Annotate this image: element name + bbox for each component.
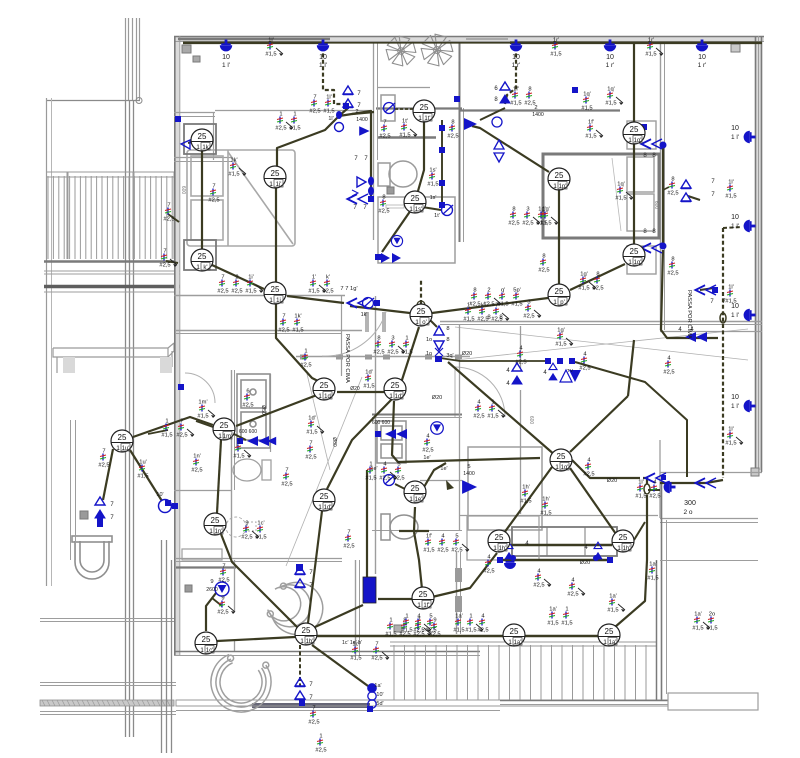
svg-text:1: 1 [491, 400, 494, 406]
svg-text:1: 1 [553, 299, 557, 306]
svg-text:#2,5: #2,5 [583, 472, 594, 478]
svg-text:25: 25 [411, 484, 420, 493]
svg-text:1a': 1a' [549, 607, 557, 613]
svg-text:1t': 1t' [402, 119, 408, 125]
svg-text:1: 1 [318, 504, 322, 511]
svg-text:#2,5: #2,5 [437, 548, 448, 554]
svg-text:#1,5: #1,5 [350, 656, 361, 662]
svg-text:1: 1 [555, 464, 559, 471]
svg-text:1l': 1l' [728, 180, 734, 186]
svg-text:8: 8 [377, 336, 380, 342]
svg-text:7: 7 [383, 120, 386, 126]
svg-text:1t': 1t' [434, 213, 440, 219]
svg-text:1g': 1g' [580, 272, 588, 278]
svg-text:1d': 1d' [395, 394, 403, 400]
svg-text:1 r': 1 r' [606, 62, 615, 69]
svg-text:#1,5: #1,5 [647, 576, 658, 582]
svg-text:25: 25 [320, 381, 329, 390]
svg-text:8: 8 [446, 326, 449, 332]
svg-text:Ø20: Ø20 [350, 386, 360, 392]
svg-text:600: 600 [180, 186, 186, 195]
svg-text:#1,5: #1,5 [550, 52, 561, 58]
svg-text:1a': 1a' [455, 614, 463, 620]
svg-text:1: 1 [409, 496, 413, 503]
svg-text:#2,5: #2,5 [667, 271, 678, 277]
svg-text:#1,5: #1,5 [197, 414, 208, 420]
svg-text:1n': 1n' [215, 529, 223, 535]
svg-text:1: 1 [405, 614, 408, 620]
svg-text:1: 1 [318, 393, 322, 400]
svg-text:#2,5: #2,5 [567, 592, 578, 598]
svg-text:300: 300 [684, 500, 696, 507]
svg-text:1k': 1k' [294, 314, 301, 320]
svg-text:10: 10 [731, 214, 739, 221]
svg-text:#2,5: #2,5 [163, 217, 174, 223]
svg-text:1n': 1n' [193, 454, 201, 460]
svg-text:#2,5: #2,5 [373, 350, 384, 356]
svg-text:25: 25 [495, 533, 504, 542]
svg-text:10: 10 [731, 125, 739, 132]
svg-text:10: 10 [731, 394, 739, 401]
svg-text:1a': 1a' [374, 683, 381, 689]
svg-text:TV: TV [567, 368, 574, 374]
svg-text:7: 7 [313, 95, 316, 101]
svg-text:1i: 1i [276, 298, 281, 304]
svg-text:#1,5: #1,5 [228, 172, 239, 178]
svg-text:p': p' [560, 300, 564, 306]
svg-text:1l': 1l' [728, 427, 734, 433]
svg-text:1h': 1h' [499, 546, 507, 552]
svg-text:#2,5: #2,5 [592, 286, 603, 292]
svg-text:k': k' [481, 303, 485, 309]
svg-text:10: 10 [222, 54, 230, 61]
svg-text:25: 25 [419, 590, 428, 599]
svg-text:600 600: 600 600 [239, 429, 257, 435]
svg-text:#1,5: #1,5 [605, 101, 616, 107]
svg-text:#1,5: #1,5 [265, 52, 276, 58]
svg-text:25: 25 [118, 433, 127, 442]
svg-text:Ø50: Ø50 [260, 405, 266, 415]
svg-text:25: 25 [557, 452, 566, 461]
svg-text:1e': 1e' [423, 455, 430, 461]
svg-text:#1,5: #1,5 [465, 628, 476, 634]
svg-text:3: 3 [391, 336, 394, 342]
svg-text:1 l': 1 l' [731, 403, 739, 410]
svg-text:1s': 1s' [429, 168, 436, 174]
svg-text:#1,5: #1,5 [427, 182, 438, 188]
svg-text:#2,5: #2,5 [533, 583, 544, 589]
svg-text:#2,5: #2,5 [477, 628, 488, 634]
svg-text:1q': 1q' [634, 138, 642, 144]
svg-text:1q': 1q' [583, 92, 591, 98]
svg-text:25: 25 [417, 307, 426, 316]
svg-text:1 r': 1 r' [512, 62, 521, 69]
svg-text:#2,5: #2,5 [522, 221, 533, 227]
svg-text:1: 1 [269, 181, 273, 188]
svg-text:o': o' [422, 320, 426, 326]
svg-text:#1,5: #1,5 [289, 126, 300, 132]
svg-text:9: 9 [245, 521, 248, 527]
svg-text:#1,5: #1,5 [607, 608, 618, 614]
svg-text:1: 1 [279, 112, 282, 118]
svg-text:#2,5: #2,5 [300, 363, 311, 369]
svg-text:1: 1 [628, 137, 632, 144]
svg-text:1q': 1q' [634, 260, 642, 266]
svg-text:1: 1 [603, 639, 607, 646]
svg-text:1: 1 [116, 445, 120, 452]
svg-text:3q': 3q' [446, 353, 453, 359]
svg-text:#2,5: #2,5 [176, 433, 187, 439]
svg-text:k': k' [326, 275, 330, 281]
svg-text:9: 9 [433, 618, 436, 624]
svg-text:1q': 1q' [607, 87, 615, 93]
svg-text:#2,5: #2,5 [379, 476, 390, 482]
svg-text:1a': 1a' [609, 640, 617, 646]
svg-text:#1,5: #1,5 [385, 632, 396, 638]
svg-text:1: 1 [418, 115, 422, 122]
svg-text:25: 25 [271, 285, 280, 294]
svg-text:#1,5: #1,5 [536, 221, 547, 227]
svg-text:#2,5: #2,5 [98, 463, 109, 469]
svg-text:8: 8 [382, 195, 385, 201]
svg-text:3: 3 [527, 300, 530, 306]
svg-text:5d': 5d' [376, 701, 383, 707]
svg-text:1: 1 [508, 639, 512, 646]
svg-text:#1,5: #1,5 [245, 289, 256, 295]
svg-text:7: 7 [347, 530, 350, 536]
svg-text:#1,5: #1,5 [401, 350, 412, 356]
svg-text:#1,5: #1,5 [137, 474, 148, 480]
svg-text:1e': 1e' [370, 466, 377, 472]
svg-text:1h': 1h' [623, 546, 631, 552]
svg-text:25: 25 [605, 627, 614, 636]
svg-text:5: 5 [467, 464, 470, 470]
svg-text:#1,5: #1,5 [645, 52, 656, 58]
svg-text:#2,5: #2,5 [343, 544, 354, 550]
svg-text:#1,5: #1,5 [497, 302, 508, 308]
svg-text:2: 2 [235, 275, 238, 281]
svg-text:1 r': 1 r' [698, 62, 707, 69]
svg-text:1: 1 [196, 264, 200, 271]
svg-text:1d': 1d' [324, 505, 332, 511]
svg-text:#1,5: #1,5 [615, 196, 626, 202]
svg-text:1: 1 [389, 618, 392, 624]
svg-text:1o: 1o [426, 337, 432, 343]
svg-text:600 600: 600 600 [372, 420, 390, 426]
svg-text:1: 1 [304, 349, 307, 355]
svg-text:Ø20: Ø20 [607, 478, 617, 484]
svg-text:#1,5: #1,5 [363, 384, 374, 390]
svg-text:1s': 1s' [430, 195, 437, 201]
svg-text:10': 10' [376, 692, 383, 698]
svg-text:1: 1 [319, 734, 322, 740]
svg-text:#1,5: #1,5 [453, 628, 464, 634]
svg-text:#2,5: #2,5 [191, 468, 202, 474]
svg-text:2: 2 [534, 105, 537, 111]
svg-text:PASSA POR CIMA: PASSA POR CIMA [686, 290, 692, 339]
svg-text:1 l': 1 l' [731, 312, 739, 319]
svg-text:1l': 1l' [326, 95, 332, 101]
svg-text:#2,5: #2,5 [447, 134, 458, 140]
svg-text:1l': 1l' [328, 116, 333, 122]
svg-text:1: 1 [565, 607, 568, 613]
svg-text:#2,5: #2,5 [281, 482, 292, 488]
svg-text:#1,5: #1,5 [510, 101, 521, 107]
svg-text:1o: 1o [426, 351, 432, 357]
svg-text:1': 1' [312, 275, 316, 281]
svg-text:3: 3 [526, 207, 529, 213]
svg-text:#2,5: #2,5 [387, 350, 398, 356]
svg-text:6: 6 [246, 389, 249, 395]
svg-text:1: 1 [417, 602, 421, 609]
svg-text:600: 600 [528, 416, 534, 425]
svg-text:25: 25 [320, 492, 329, 501]
svg-text:#2,5: #2,5 [378, 209, 389, 215]
svg-text:1r': 1r' [553, 38, 559, 44]
svg-text:#2,5: #2,5 [422, 448, 433, 454]
svg-text:#2,5: #2,5 [379, 134, 390, 140]
svg-text:2o: 2o [709, 612, 715, 618]
svg-text:1k: 1k [202, 145, 209, 151]
svg-text:#1,5: #1,5 [365, 476, 376, 482]
svg-text:25: 25 [271, 169, 280, 178]
svg-text:1q': 1q' [617, 182, 625, 188]
svg-text:1: 1 [300, 638, 304, 645]
svg-text:#1,5: #1,5 [255, 535, 266, 541]
svg-text:1a': 1a' [609, 594, 617, 600]
svg-text:1e': 1e' [440, 466, 447, 472]
svg-text:10: 10 [731, 303, 739, 310]
svg-text:#1,5: #1,5 [725, 194, 736, 200]
svg-text:#1,5: #1,5 [463, 317, 474, 323]
svg-text:1: 1 [200, 647, 204, 654]
svg-text:#1,5: #1,5 [306, 430, 317, 436]
svg-text:#1,5: #1,5 [540, 511, 551, 517]
svg-text:1l': 1l' [638, 480, 644, 486]
svg-text:10: 10 [698, 54, 706, 61]
svg-text:1h': 1h' [542, 497, 550, 503]
svg-text:1400: 1400 [463, 471, 475, 477]
svg-text:8: 8 [446, 337, 449, 343]
svg-text:7: 7 [163, 249, 166, 255]
svg-text:#1,5: #1,5 [692, 626, 703, 632]
svg-text:#2,5: #2,5 [217, 610, 228, 616]
svg-text:25: 25 [202, 635, 211, 644]
svg-text:7: 7 [180, 419, 183, 425]
svg-text:1: 1 [389, 393, 393, 400]
svg-text:25: 25 [302, 626, 311, 635]
svg-text:#2,5: #2,5 [413, 628, 424, 634]
svg-text:1b': 1b' [306, 639, 314, 645]
svg-text:Ø20: Ø20 [580, 560, 590, 566]
svg-text:#2,5: #2,5 [322, 289, 333, 295]
svg-text:5: 5 [429, 614, 432, 620]
svg-text:1f': 1f' [588, 120, 594, 126]
svg-text:1: 1 [218, 433, 222, 440]
svg-text:#1,5: #1,5 [585, 134, 596, 140]
svg-text:10: 10 [319, 54, 327, 61]
svg-text:#1,5: #1,5 [399, 133, 410, 139]
svg-text:#2,5: #2,5 [508, 221, 519, 227]
svg-text:#2,5: #2,5 [242, 403, 253, 409]
svg-text:1r': 1r' [648, 38, 654, 44]
svg-text:1j': 1j' [276, 182, 282, 188]
svg-text:#2,5: #2,5 [159, 263, 170, 269]
svg-text:7: 7 [285, 468, 288, 474]
svg-text:7: 7 [375, 642, 378, 648]
svg-text:1m': 1m' [223, 434, 232, 440]
svg-text:5: 5 [397, 462, 400, 468]
svg-text:#2,5: #2,5 [278, 328, 289, 334]
svg-text:1u': 1u' [139, 460, 147, 466]
svg-text:8: 8 [671, 257, 674, 263]
svg-text:1: 1 [269, 297, 273, 304]
svg-text:9: 9 [210, 579, 213, 585]
svg-text:1: 1 [165, 419, 168, 425]
svg-text:600: 600 [653, 201, 659, 210]
svg-text:25: 25 [510, 627, 519, 636]
svg-text:1400: 1400 [532, 112, 544, 118]
svg-text:#2,5: #2,5 [451, 548, 462, 554]
svg-text:7: 7 [221, 275, 224, 281]
svg-text:Ø80: Ø80 [331, 437, 337, 447]
svg-text:1: 1 [553, 183, 557, 190]
svg-text:1: 1 [293, 112, 296, 118]
svg-text:10: 10 [606, 54, 614, 61]
svg-text:5p': 5p' [513, 288, 521, 294]
svg-text:1l': 1l' [268, 38, 274, 44]
svg-text:1p': 1p' [559, 184, 567, 190]
svg-text:1l': 1l' [728, 285, 734, 291]
svg-text:#1,5: #1,5 [323, 109, 334, 115]
svg-text:7: 7 [102, 449, 105, 455]
svg-text:8: 8 [512, 207, 515, 213]
svg-text:10: 10 [512, 54, 520, 61]
svg-text:#2,5: #2,5 [309, 109, 320, 115]
svg-text:Ø20: Ø20 [462, 351, 472, 357]
svg-text:5: 5 [455, 534, 458, 540]
svg-text:#1,5: #1,5 [725, 441, 736, 447]
svg-text:1400: 1400 [356, 117, 368, 123]
svg-text:PASSA POR CIMA: PASSA POR CIMA [344, 334, 350, 383]
svg-text:25: 25 [555, 171, 564, 180]
svg-text:2: 2 [487, 288, 490, 294]
svg-text:#1,5: #1,5 [635, 494, 646, 500]
svg-text:1: 1 [493, 545, 497, 552]
svg-text:#1,5: #1,5 [308, 289, 319, 295]
svg-text:#1,5: #1,5 [401, 628, 412, 634]
svg-text:8: 8 [596, 272, 599, 278]
svg-text:1': 1' [467, 303, 471, 309]
svg-text:2 o: 2 o [683, 509, 692, 516]
svg-text:1f': 1f' [426, 534, 432, 540]
svg-text:#1,5: #1,5 [487, 414, 498, 420]
svg-text:8: 8 [671, 177, 674, 183]
svg-text:1c' 1e' b': 1c' 1e' b' [342, 640, 362, 646]
svg-text:#2,5: #2,5 [667, 191, 678, 197]
svg-text:1c': 1c' [206, 648, 213, 654]
svg-text:1 l': 1 l' [731, 223, 739, 230]
svg-text:1: 1 [628, 259, 632, 266]
svg-text:#2,5: #2,5 [483, 302, 494, 308]
svg-text:#2,5: #2,5 [425, 628, 436, 634]
svg-text:1: 1 [196, 144, 200, 151]
svg-text:1 l': 1 l' [731, 134, 739, 141]
svg-text:#1,5: #1,5 [520, 499, 531, 505]
svg-text:7: 7 [167, 203, 170, 209]
svg-text:#2,5: #2,5 [231, 289, 242, 295]
svg-text:#2,5: #2,5 [305, 455, 316, 461]
svg-text:1c': 1c' [257, 521, 264, 527]
svg-text:q': q' [501, 288, 505, 294]
svg-text:1a': 1a' [694, 612, 702, 618]
svg-text:1: 1 [469, 614, 472, 620]
svg-text:1e': 1e' [415, 497, 423, 503]
svg-text:1a': 1a' [649, 562, 657, 568]
svg-text:25: 25 [211, 516, 220, 525]
svg-text:1k': 1k' [230, 158, 237, 164]
svg-text:7: 7 [282, 314, 285, 320]
svg-text:8: 8 [451, 120, 454, 126]
svg-text:#2,5: #2,5 [523, 314, 534, 320]
svg-text:25: 25 [619, 533, 628, 542]
svg-text:k': k' [203, 265, 207, 271]
svg-text:1s': 1s' [415, 207, 422, 213]
svg-text:1g': 1g' [557, 328, 565, 334]
svg-text:1: 1 [409, 206, 413, 213]
svg-text:25: 25 [198, 252, 207, 261]
svg-text:1d: 1d [324, 394, 331, 400]
svg-text:2600: 2600 [206, 587, 218, 593]
svg-text:1: 1 [405, 336, 408, 342]
svg-text:1f': 1f' [423, 603, 429, 609]
svg-text:7: 7 [222, 564, 225, 570]
svg-text:1k': 1k' [361, 312, 368, 318]
svg-text:#2,5: #2,5 [218, 578, 229, 584]
svg-text:#2,5: #2,5 [241, 535, 252, 541]
svg-text:1 l': 1 l' [222, 62, 230, 69]
svg-text:#1,5: #1,5 [233, 454, 244, 460]
svg-text:#1,5: #1,5 [555, 342, 566, 348]
svg-text:#2,5: #2,5 [483, 569, 494, 575]
svg-text:#2,5: #2,5 [663, 370, 674, 376]
svg-text:8: 8 [542, 254, 545, 260]
svg-text:#1,5: #1,5 [547, 621, 558, 627]
svg-text:1: 1 [617, 545, 621, 552]
svg-text:#1,5: #1,5 [292, 328, 303, 334]
svg-text:#2,5: #2,5 [308, 720, 319, 726]
svg-text:7: 7 [309, 441, 312, 447]
svg-text:25: 25 [411, 194, 420, 203]
svg-text:#2,5: #2,5 [208, 198, 219, 204]
svg-text:25: 25 [420, 103, 429, 112]
svg-text:#2,5: #2,5 [371, 656, 382, 662]
svg-text:#1,5: #1,5 [706, 626, 717, 632]
svg-text:7: 7 [312, 706, 315, 712]
svg-text:8: 8 [528, 87, 531, 93]
svg-text:1g': 1g' [538, 207, 546, 213]
svg-text:#2,5: #2,5 [538, 268, 549, 274]
svg-text:#1,5: #1,5 [423, 548, 434, 554]
svg-text:25: 25 [630, 247, 639, 256]
svg-text:10': 10' [156, 492, 163, 498]
svg-text:1 l': 1 l' [319, 62, 327, 69]
svg-text:2: 2 [355, 109, 358, 115]
svg-text:#1,5: #1,5 [511, 302, 522, 308]
svg-text:#2,5: #2,5 [275, 126, 286, 132]
svg-text:1: 1 [209, 528, 213, 535]
svg-text:1h': 1h' [522, 485, 530, 491]
